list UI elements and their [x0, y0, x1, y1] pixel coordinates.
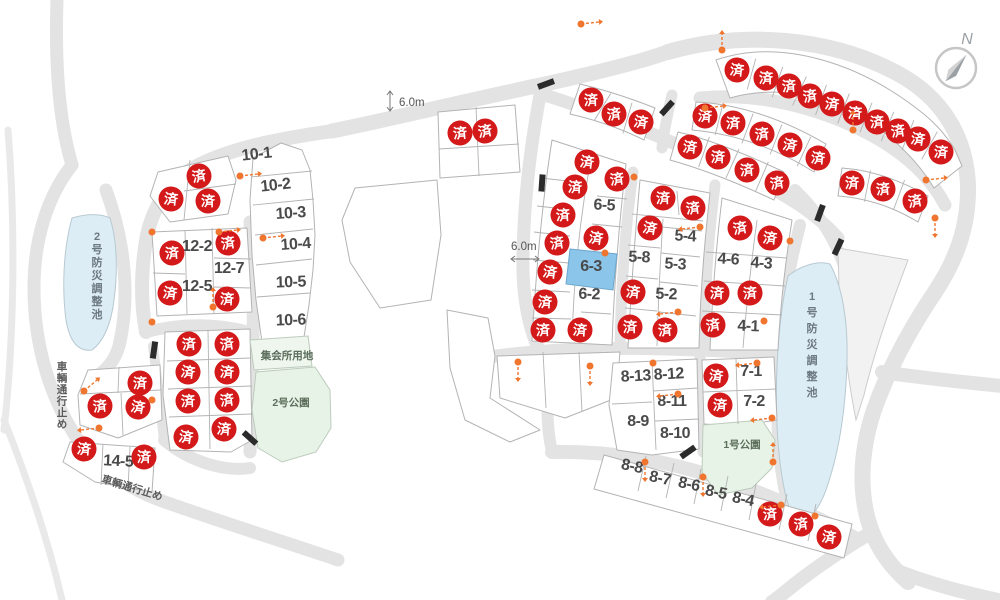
lot-label-6-2[interactable]: 6-2 [578, 286, 601, 304]
lot-label-8-9[interactable]: 8-9 [627, 413, 649, 430]
lot-label-12-5[interactable]: 12-5 [182, 278, 213, 295]
lot-label-8-10[interactable]: 8-10 [660, 425, 691, 442]
sold-badge-label: 済 [92, 397, 109, 414]
sold-badge-label: 済 [729, 61, 746, 78]
lot-label-12-2[interactable]: 12-2 [182, 238, 213, 255]
sold-badge-label: 済 [754, 125, 771, 142]
view-marker [812, 513, 819, 520]
sold-badge-label: 済 [711, 149, 726, 165]
sold-badge-label: 済 [762, 229, 779, 246]
compass-north-label: N [961, 31, 973, 48]
view-marker [650, 360, 657, 367]
lot-label-10-4[interactable]: 10-4 [280, 235, 312, 254]
view-marker [149, 397, 156, 404]
view-marker [761, 318, 768, 325]
sold-badge-label: 済 [682, 138, 699, 155]
subdivision-map-page: 10-110-210-310-410-510-612-212-712-514-5… [0, 0, 1000, 600]
view-marker [932, 215, 939, 239]
road [4, 420, 62, 600]
sold-badge-label: 済 [810, 149, 826, 166]
lot-label-5-2[interactable]: 5-2 [655, 286, 678, 304]
sold-badge-label: 済 [870, 114, 886, 131]
lot-label-10-1[interactable]: 10-1 [241, 144, 273, 164]
lot-label-10-3[interactable]: 10-3 [275, 204, 307, 223]
sold-badge-label: 済 [568, 179, 584, 196]
road-closed-barrier [538, 174, 545, 191]
sold-badge-label: 済 [656, 190, 671, 206]
lot-label-6-5[interactable]: 6-5 [593, 196, 616, 214]
sold-badge-label: 済 [742, 284, 758, 301]
sold-badge-label: 済 [133, 375, 148, 391]
area-label-2: 1号公園 [723, 439, 760, 451]
sold-badge-label: 済 [584, 92, 600, 109]
park-area [252, 367, 331, 462]
road-width-label: 6.0m [511, 241, 537, 253]
lot-label-10-5[interactable]: 10-5 [276, 273, 307, 291]
sold-badge-label: 済 [220, 364, 236, 381]
sold-badge-label: 済 [572, 322, 588, 339]
sold-badge: 済 [618, 315, 643, 340]
view-marker [787, 238, 794, 245]
sold-badge-label: 済 [216, 421, 232, 438]
lot-label-5-4[interactable]: 5-4 [674, 227, 697, 245]
lot-label-10-2[interactable]: 10-2 [260, 175, 292, 195]
road-note-vertical: 車輌通行止め [56, 360, 68, 431]
sold-badge-label: 済 [781, 77, 797, 94]
road [882, 372, 1000, 386]
lot-label-8-13[interactable]: 8-13 [620, 367, 651, 386]
view-marker [631, 174, 638, 181]
sold-badge-label: 済 [934, 144, 950, 161]
site-map: 10-110-210-310-410-510-612-212-712-514-5… [0, 0, 1000, 600]
sold-badge-label: 済 [848, 105, 864, 122]
lot-label-5-8[interactable]: 5-8 [628, 249, 651, 267]
sold-badge-label: 済 [163, 190, 180, 207]
sold-badge-label: 済 [220, 291, 236, 308]
sold-badge: 済 [132, 445, 157, 470]
sold-badge-label: 済 [625, 283, 641, 300]
sold-badge-label: 済 [181, 393, 197, 410]
sold-badge-label: 済 [182, 336, 198, 353]
view-marker [149, 319, 156, 326]
sold-badge-label: 済 [201, 193, 216, 209]
view-marker [578, 19, 603, 27]
sold-badge-label: 済 [759, 70, 774, 86]
sold-badge-label: 済 [657, 321, 673, 338]
pond-label: 2号防災調整池 [91, 231, 104, 321]
lot-label-14-5[interactable]: 14-5 [103, 452, 134, 471]
measure-arrow [387, 91, 393, 111]
sold-badge-label: 済 [685, 199, 702, 216]
view-marker [149, 229, 156, 236]
sold-badge-label: 済 [710, 285, 725, 301]
lot-label-7-2[interactable]: 7-2 [743, 393, 765, 410]
sold-badge-label: 済 [536, 322, 552, 339]
sold-badge-label: 済 [845, 175, 860, 191]
sold-badge-label: 済 [76, 440, 92, 457]
sold-badge-label: 済 [538, 294, 554, 311]
road-width-label: 6.0m [399, 97, 425, 109]
sold-badge-label: 済 [739, 161, 755, 178]
lot-label-8-12[interactable]: 8-12 [653, 365, 684, 384]
sold-badge: 済 [840, 171, 865, 196]
lot-label-4-6[interactable]: 4-6 [717, 250, 740, 269]
lot-label-5-3[interactable]: 5-3 [664, 255, 687, 273]
sold-badge-label: 済 [713, 397, 729, 414]
sold-badge-label: 済 [137, 449, 152, 465]
sold-badge-label: 済 [763, 506, 779, 523]
lot-label-10-6[interactable]: 10-6 [276, 311, 307, 329]
sold-badge-label: 済 [875, 180, 891, 197]
lot-label-6-3-highlighted[interactable]: 6-3 [580, 258, 602, 275]
area-label-1: 2号公園 [272, 397, 309, 409]
view-marker [602, 250, 609, 257]
area-label-0: 集会所用地 [260, 349, 314, 362]
lot-block [342, 180, 441, 308]
sold-badge-label: 済 [623, 319, 638, 335]
lot-label-4-3[interactable]: 4-3 [750, 254, 773, 273]
sold-badge-label: 済 [164, 244, 180, 261]
lot-label-4-1[interactable]: 4-1 [737, 318, 760, 336]
sold-badge-label: 済 [556, 207, 572, 224]
pond-label: 1号防災調整池 [806, 291, 819, 399]
lot-label-12-7[interactable]: 12-7 [214, 260, 245, 277]
road [56, 0, 72, 165]
sold-badge-label: 済 [726, 115, 741, 131]
road [4, 130, 13, 430]
sold-badge-label: 済 [452, 124, 468, 141]
compass-icon: N [936, 31, 976, 88]
retention-pond [64, 215, 117, 351]
